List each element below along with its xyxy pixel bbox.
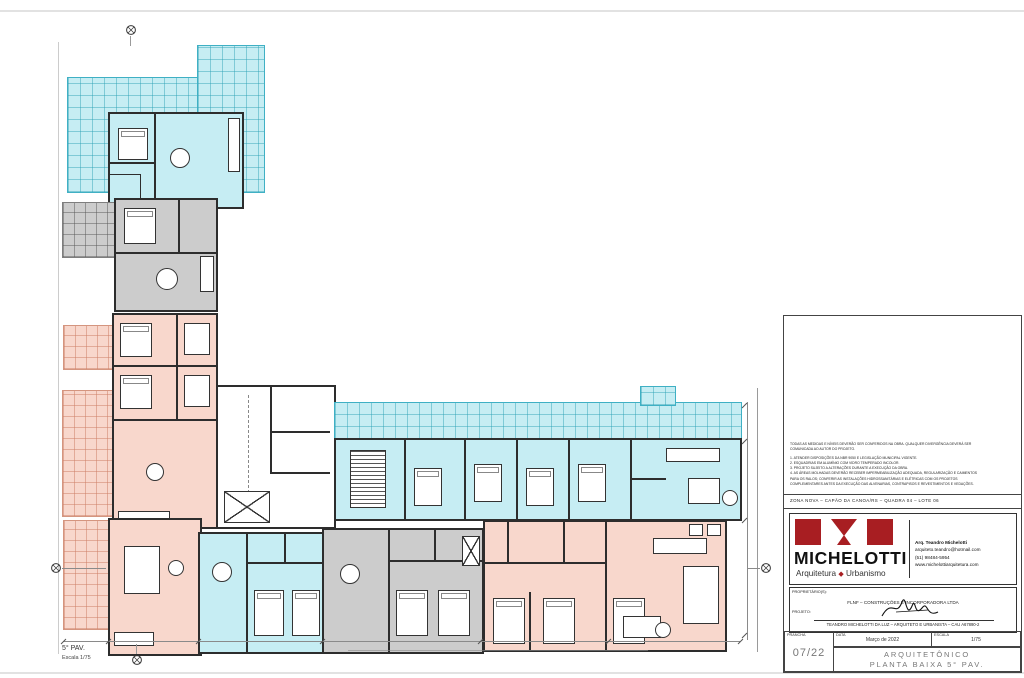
circulation-core	[216, 385, 336, 529]
note-line: 4. AS ÁREAS MOLHADAS DEVERÃO RECEBER IMP…	[790, 471, 960, 476]
sheet-number-label: PRANCHA	[787, 633, 806, 637]
dining-table	[124, 546, 160, 594]
michelotti-logo-icon	[795, 519, 893, 547]
wall	[404, 440, 406, 519]
table-round	[340, 564, 360, 584]
table-round	[170, 148, 190, 168]
wall	[605, 522, 607, 650]
bed-furniture	[438, 590, 470, 636]
wall	[485, 562, 605, 564]
architect-name: Arq. Teandro Michelotti	[915, 539, 980, 546]
divider	[784, 494, 1021, 495]
floor-caption: 5° PAV.	[62, 645, 85, 652]
wall	[507, 522, 509, 562]
note-line: COMUNICADA AO AUTOR DO PROJETO.	[790, 447, 960, 452]
dimension-line-bottom	[63, 641, 740, 642]
wall	[563, 522, 565, 562]
terrace-band-cyan	[334, 402, 742, 440]
unit-bottom-salmon-1	[108, 518, 202, 656]
bed-furniture	[254, 590, 284, 636]
unit-band-cyan	[334, 438, 742, 521]
bed-furniture	[292, 590, 320, 636]
bed-furniture	[120, 323, 152, 357]
bathroom-fixture	[184, 375, 210, 407]
contact-block: Arq. Teandro Michelotti arquiteto.teandr…	[915, 539, 980, 568]
grid-marker-icon	[760, 562, 772, 574]
date-cell: DATA Março de 2022	[833, 631, 932, 647]
dimension-line-right	[747, 402, 748, 640]
wall	[114, 365, 216, 367]
bed-furniture	[124, 208, 156, 244]
sheet-top-edge	[0, 10, 1024, 12]
kitchen-island	[683, 566, 719, 624]
wall	[176, 315, 178, 419]
wall	[270, 431, 330, 433]
tagline-right: Urbanismo	[846, 569, 886, 578]
grid-marker-icon	[131, 654, 143, 666]
wall	[516, 440, 518, 519]
wall	[154, 114, 156, 207]
kitchen-counter	[114, 632, 154, 646]
wall	[110, 162, 154, 164]
unit-topleft-cyan	[108, 112, 244, 209]
table-round	[146, 463, 164, 481]
date-value: Março de 2022	[834, 637, 931, 643]
wall	[630, 478, 666, 480]
wall	[270, 472, 330, 474]
kitchen-counter	[228, 118, 240, 172]
brand-name: MICHELOTTI	[794, 548, 907, 569]
owner-label: PROPRIETÁRIO(S):	[792, 590, 827, 594]
wall	[178, 200, 180, 252]
marker-stem	[136, 644, 137, 654]
service-shaft	[462, 536, 480, 566]
wall	[246, 562, 324, 564]
logo-block: MICHELOTTI Arquitetura ◆ Urbanismo Arq. …	[789, 513, 1017, 585]
general-notes: TODAS AS MEDIDAS E NÍVEIS DEVERÃO SER CO…	[790, 442, 960, 487]
unit-left-gray	[114, 198, 218, 312]
brand-tagline: Arquitetura ◆ Urbanismo	[796, 569, 886, 578]
terrace-pink-lower	[62, 390, 114, 517]
title-block: TODAS AS MEDIDAS E NÍVEIS DEVERÃO SER CO…	[783, 315, 1022, 673]
marker-stem	[62, 568, 106, 569]
architect-phone: (51) 98484-5954	[915, 554, 980, 561]
marker-stem	[130, 36, 131, 46]
table-round	[156, 268, 178, 290]
stairwell	[350, 450, 386, 508]
kitchen-island	[688, 478, 720, 504]
divider	[784, 508, 1021, 509]
sheet-number-value: 07/22	[785, 647, 833, 659]
sheet-number-cell: PRANCHA 07/22	[784, 631, 834, 672]
bathroom-fixture	[184, 323, 210, 355]
elevator-shaft	[224, 491, 270, 523]
signature-icon	[876, 588, 946, 622]
dimension-line-bottom-2	[348, 650, 648, 651]
kitchen-counter	[666, 448, 720, 462]
diamond-icon: ◆	[838, 571, 843, 578]
divider	[909, 520, 910, 578]
wall	[110, 174, 140, 175]
drawing-title-line1: ARQUITETÔNICO	[834, 650, 1020, 659]
scale-cell: ESCALA 1/75	[931, 631, 1021, 647]
drawing-sheet: 5° PAV. Escala 1/75 TODAS AS MEDIDAS E N…	[0, 0, 1024, 678]
grid-marker-icon	[50, 562, 62, 574]
architect-email: arquiteto.teandro@hotmail.com	[915, 546, 980, 553]
unit-bottom-salmon-2	[483, 520, 727, 652]
bed-furniture	[414, 468, 442, 506]
drawing-title-box: ARQUITETÔNICO PLANTA BAIXA 5° PAV.	[833, 647, 1021, 672]
corridor-dashed-line	[248, 395, 249, 493]
unit-bottom-gray	[322, 528, 484, 654]
table-round	[655, 622, 671, 638]
wall	[116, 252, 216, 254]
wall	[270, 387, 272, 472]
kitchen-counter	[200, 256, 214, 292]
tagline-left: Arquitetura	[796, 569, 836, 578]
bed-furniture	[396, 590, 428, 636]
wall	[568, 440, 570, 519]
table-round	[168, 560, 184, 576]
unit-left-salmon	[112, 313, 218, 529]
project-value: TEANDRO MICHELOTTI DA LUZ – ARQUITETO E …	[790, 622, 1016, 627]
wall	[464, 440, 466, 519]
wall	[284, 534, 286, 562]
terrace-bottom-pink	[63, 520, 110, 630]
scale-cell-value: 1/75	[932, 637, 1020, 643]
note-line: COMPLEMENTARES ANTES DA EXECUÇÃO DAS ALV…	[790, 482, 960, 487]
owner-project-block: PROPRIETÁRIO(S): FLNF – CONSTRUÇÕES E IN…	[789, 587, 1017, 633]
dimension-tick	[738, 639, 744, 645]
appliance	[689, 524, 703, 536]
bed-furniture	[474, 464, 502, 502]
unit-bottom-cyan	[198, 532, 326, 654]
bed-furniture	[120, 375, 152, 409]
drawing-title-line2: PLANTA BAIXA 5° PAV.	[834, 660, 1020, 669]
scale-caption: Escala 1/75	[62, 655, 91, 661]
marker-stem	[748, 568, 760, 569]
kitchen-counter	[653, 538, 707, 554]
wall	[114, 419, 216, 421]
table-round	[722, 490, 738, 506]
bed-furniture	[543, 598, 575, 644]
terrace-gray	[62, 202, 120, 258]
appliance	[707, 524, 721, 536]
wall	[434, 530, 436, 560]
table-round	[212, 562, 232, 582]
terrace-bump-cyan	[640, 386, 676, 406]
wall	[388, 530, 390, 652]
lot-boundary-right	[757, 388, 758, 652]
architect-website: www.michelottiarquitetura.com	[915, 561, 980, 568]
project-label: PROJETO:	[792, 610, 811, 614]
bed-furniture	[118, 128, 148, 160]
bed-furniture	[578, 464, 606, 502]
wall	[246, 534, 248, 652]
bed-furniture	[526, 468, 554, 506]
project-location: ZONA NOVA – CAPÃO DA CANOA/RS – QUADRA 0…	[790, 498, 939, 503]
bed-furniture	[493, 598, 525, 644]
grid-marker-icon	[125, 24, 137, 36]
